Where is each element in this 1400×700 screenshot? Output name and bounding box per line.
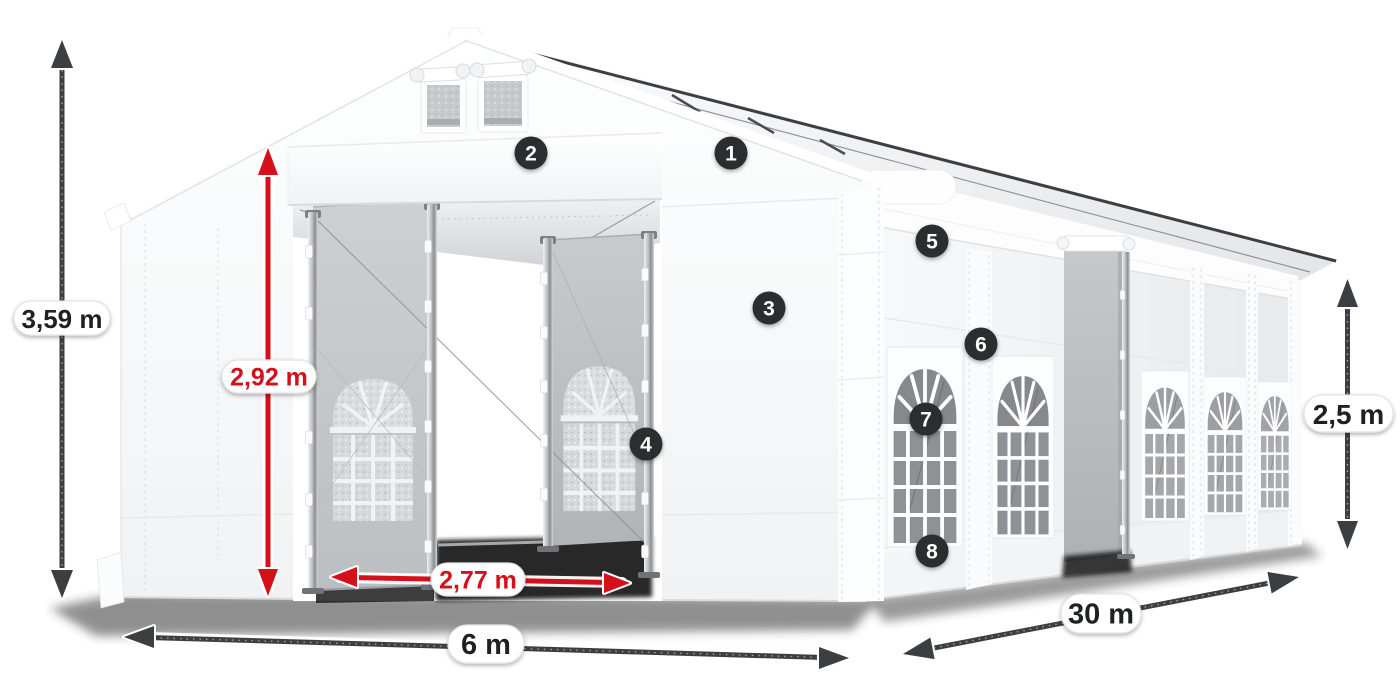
tent-diagram-canvas: 3,59 m 2,92 m 2,77 m 6 m 30 m xyxy=(0,0,1400,700)
front-corner-post xyxy=(838,185,884,602)
arrow-down-icon xyxy=(51,570,73,598)
door-panel-left xyxy=(313,200,431,589)
dimension-label: 2,92 m xyxy=(230,364,308,392)
dimension-total-height: 3,59 m xyxy=(14,40,110,598)
callout-badge-7[interactable]: 7 xyxy=(910,403,943,436)
dimension-label: 3,59 m xyxy=(22,304,103,334)
arrow-up-icon xyxy=(1337,279,1358,307)
side-window-2 xyxy=(992,356,1054,538)
side-window-3 xyxy=(1141,371,1189,521)
callout-badge-6[interactable]: 6 xyxy=(965,328,998,361)
side-window-5 xyxy=(1258,382,1292,510)
callout-number: 5 xyxy=(926,231,938,254)
dimension-label: 6 m xyxy=(461,629,511,661)
tent-diagram: 3,59 m 2,92 m 2,77 m 6 m 30 m xyxy=(0,0,1400,700)
callout-badge-1[interactable]: 1 xyxy=(715,137,748,170)
door-panel-right xyxy=(549,234,649,546)
dimension-label: 2,77 m xyxy=(439,567,517,595)
callout-badge-4[interactable]: 4 xyxy=(630,428,663,461)
door-panel-window xyxy=(330,379,416,521)
callout-number: 3 xyxy=(763,298,775,321)
side-window-4 xyxy=(1204,377,1246,515)
rolled-door-icon xyxy=(1060,236,1132,251)
side-door-opening xyxy=(1057,236,1135,578)
callout-number: 6 xyxy=(975,334,987,357)
callout-number: 2 xyxy=(525,143,537,166)
side-window-1 xyxy=(887,347,963,547)
dimension-label: 30 m xyxy=(1068,599,1134,631)
dimension-side-wall-height: 2,5 m xyxy=(1304,279,1393,549)
arrow-down-icon xyxy=(1337,521,1358,549)
corner-skirt-flap xyxy=(97,552,124,608)
callout-number: 4 xyxy=(640,434,652,457)
callout-badge-5[interactable]: 5 xyxy=(916,225,949,258)
callout-badge-2[interactable]: 2 xyxy=(515,137,548,170)
callout-number: 1 xyxy=(725,143,737,166)
callout-badge-8[interactable]: 8 xyxy=(916,535,949,568)
door-panel-window xyxy=(561,366,638,511)
callout-badge-3[interactable]: 3 xyxy=(753,292,786,325)
front-entrance xyxy=(293,197,662,603)
arrow-right-icon xyxy=(1267,572,1299,594)
arrow-right-icon xyxy=(819,647,849,669)
dimension-label: 2,5 m xyxy=(1313,399,1385,430)
callout-number: 8 xyxy=(926,541,938,564)
callout-number: 7 xyxy=(920,409,932,432)
arrow-left-icon xyxy=(903,638,935,660)
arrow-up-icon xyxy=(51,40,73,68)
